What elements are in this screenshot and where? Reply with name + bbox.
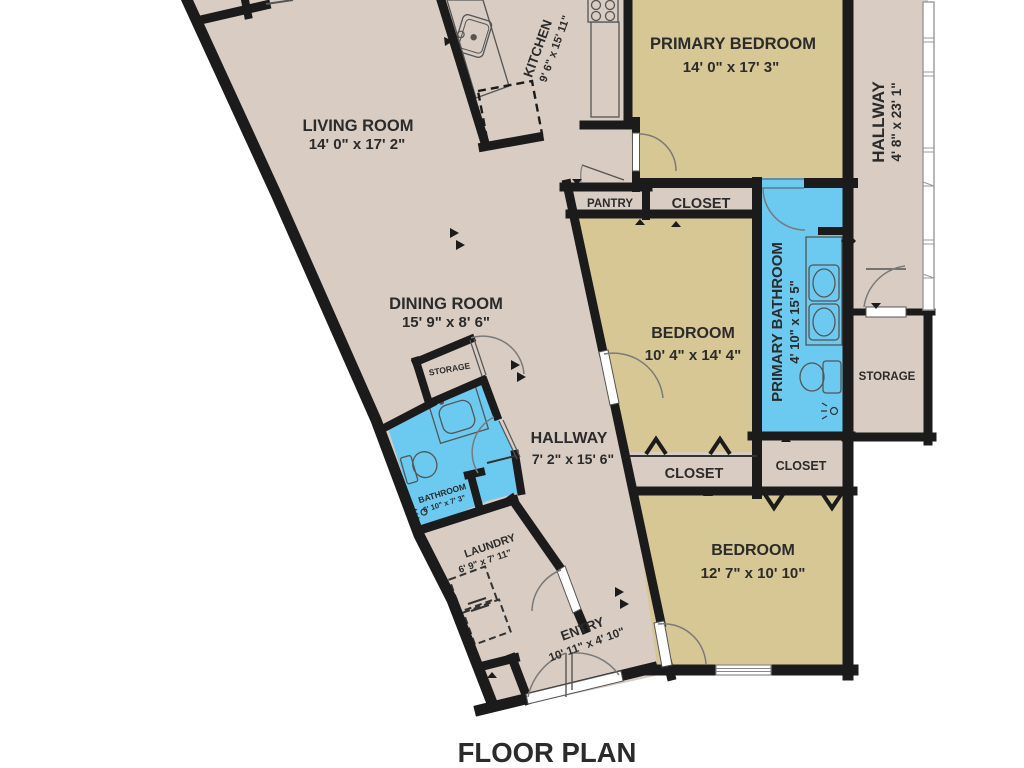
svg-text:7' 2" x 15' 6": 7' 2" x 15' 6" — [532, 451, 614, 467]
svg-text:4' 8" x 23' 1": 4' 8" x 23' 1" — [889, 82, 904, 161]
svg-text:PRIMARY BEDROOM: PRIMARY BEDROOM — [650, 35, 816, 53]
svg-text:HALLWAY: HALLWAY — [869, 81, 888, 163]
svg-text:DINING ROOM: DINING ROOM — [389, 295, 503, 313]
svg-text:CLOSET: CLOSET — [776, 459, 827, 473]
svg-text:4' 10" x 15' 5": 4' 10" x 15' 5" — [787, 280, 802, 364]
svg-text:14' 0" x 17' 2": 14' 0" x 17' 2" — [309, 136, 405, 153]
svg-text:BEDROOM: BEDROOM — [651, 325, 735, 342]
svg-text:PANTRY: PANTRY — [587, 198, 633, 210]
svg-text:PRIMARY BATHROOM: PRIMARY BATHROOM — [769, 242, 786, 402]
svg-text:FLOOR PLAN: FLOOR PLAN — [458, 737, 637, 768]
svg-text:STORAGE: STORAGE — [859, 371, 916, 383]
svg-text:HALLWAY: HALLWAY — [531, 430, 608, 447]
svg-text:15' 9" x 8' 6": 15' 9" x 8' 6" — [402, 314, 490, 331]
svg-text:12' 7" x 10' 10": 12' 7" x 10' 10" — [701, 565, 806, 582]
svg-text:BEDROOM: BEDROOM — [711, 542, 795, 559]
svg-text:CLOSET: CLOSET — [665, 466, 724, 482]
svg-text:CLOSET: CLOSET — [672, 196, 731, 212]
svg-text:10' 4" x 14' 4": 10' 4" x 14' 4" — [645, 347, 741, 364]
svg-text:14' 0" x 17' 3": 14' 0" x 17' 3" — [683, 59, 779, 76]
svg-text:LIVING ROOM: LIVING ROOM — [303, 117, 414, 135]
